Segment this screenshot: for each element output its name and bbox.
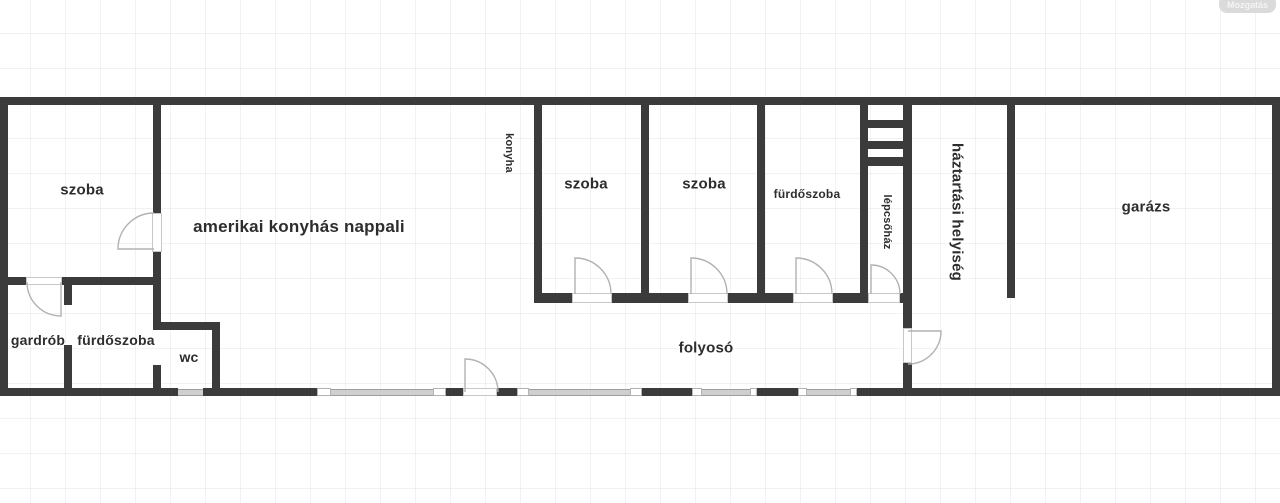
wall-szoba-right-lower — [153, 252, 161, 323]
room-label-haztartasi: háztartási helyiség — [949, 143, 966, 281]
window-cap — [317, 388, 331, 396]
wall-gardrob-furdo-upper — [64, 277, 72, 305]
door-arc-szoba1 — [575, 258, 611, 294]
wall-szoba2-furdo — [757, 97, 765, 303]
wall-top — [0, 97, 1280, 105]
window — [331, 389, 433, 396]
door-arc-haztartasi — [908, 331, 941, 364]
room-label-folyoso: folyosó — [679, 340, 734, 357]
room-label-wc: wc — [179, 349, 198, 365]
window-cap — [630, 388, 642, 396]
wall-left — [0, 97, 8, 396]
window-cap — [798, 388, 807, 396]
wall-lepcso-left — [860, 97, 868, 303]
door-swings — [0, 0, 1280, 503]
wall-nappali-szoba1 — [534, 97, 542, 303]
door-opening-szoba-left — [152, 213, 162, 252]
wall-corridor-top-e — [900, 293, 912, 303]
wall-bottom-a — [0, 388, 178, 396]
window-cap — [433, 388, 446, 396]
stair-tread — [868, 120, 903, 128]
room-label-szoba-1: szoba — [564, 176, 608, 193]
door-arc-szoba-left — [118, 213, 154, 249]
wall-bottom-d — [497, 388, 517, 396]
wall-wc-top — [153, 322, 220, 330]
wall-szoba-right-upper — [153, 97, 161, 213]
window — [702, 389, 752, 396]
wall-gardrob-top-b — [62, 277, 161, 285]
room-label-szoba-left: szoba — [60, 182, 104, 199]
door-arc-lepcsohaz — [871, 265, 900, 294]
door-arc-gardrob — [27, 282, 61, 316]
room-label-furdoszoba-mid: fürdőszoba — [774, 187, 841, 201]
door-opening-gardrob — [26, 277, 62, 285]
stair-tread — [868, 141, 903, 149]
floor-plan: szoba amerikai konyhás nappali konyha sz… — [0, 0, 1280, 503]
wall-haztartasi-garazs — [1007, 97, 1015, 298]
room-label-garazs: garázs — [1122, 199, 1171, 216]
door-opening-szoba2 — [688, 293, 728, 303]
room-label-szoba-2: szoba — [682, 176, 726, 193]
wall-bottom-c — [446, 388, 463, 396]
wall-corridor-top-c — [728, 293, 793, 303]
window-cap — [850, 388, 857, 396]
wall-corridor-top-a — [534, 293, 572, 303]
window-cap — [750, 388, 757, 396]
wall-bottom-b — [203, 388, 317, 396]
door-opening-furdoszoba — [793, 293, 833, 303]
wall-wc-right — [212, 322, 220, 396]
wall-bottom-g — [857, 388, 1280, 396]
wall-bottom-f — [757, 388, 798, 396]
room-label-lepcsohaz: lépcsőház — [881, 195, 893, 250]
door-opening-entrance — [463, 388, 497, 396]
room-label-furdoszoba-left: fürdőszoba — [77, 332, 154, 348]
window — [807, 389, 850, 396]
wall-corridor-top-b — [612, 293, 688, 303]
window-cap — [517, 388, 529, 396]
door-opening-haztartasi — [903, 328, 912, 363]
room-label-konyha: konyha — [503, 133, 515, 173]
wall-right — [1272, 97, 1280, 396]
wall-szoba1-szoba2 — [641, 97, 649, 303]
door-arc-furdoszoba — [796, 258, 832, 294]
window — [178, 389, 203, 396]
window-cap — [692, 388, 702, 396]
door-arc-szoba2 — [691, 258, 727, 294]
stair-tread — [868, 157, 903, 166]
door-opening-szoba1 — [572, 293, 612, 303]
move-badge[interactable]: Mozgatás — [1219, 0, 1276, 13]
window — [529, 389, 630, 396]
room-label-nappali: amerikai konyhás nappali — [193, 217, 405, 237]
wall-corridor-top-d — [833, 293, 868, 303]
room-label-gardrob: gardrób — [11, 332, 65, 348]
wall-gardrob-top-a — [0, 277, 26, 285]
wall-bottom-e — [642, 388, 692, 396]
door-opening-lepcsohaz — [868, 293, 900, 303]
